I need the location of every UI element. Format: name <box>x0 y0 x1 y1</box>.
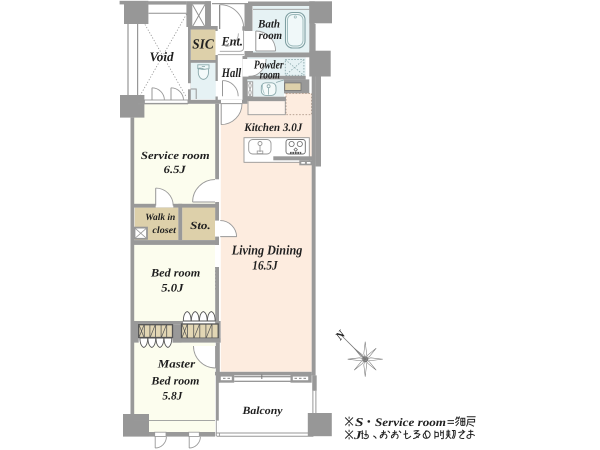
svg-text:Service room: Service room <box>141 150 210 162</box>
svg-text:Sto.: Sto. <box>190 220 211 232</box>
svg-text:Void: Void <box>150 49 175 64</box>
svg-text:Living Dining: Living Dining <box>231 242 303 257</box>
svg-text:S: S <box>355 415 364 429</box>
svg-text:5.0J: 5.0J <box>161 283 185 295</box>
svg-text:Bed room: Bed room <box>150 267 200 279</box>
svg-text:closet: closet <box>152 226 176 236</box>
svg-text:Bed room: Bed room <box>150 376 199 388</box>
svg-text:Master: Master <box>157 359 196 371</box>
svg-text:room: room <box>259 30 283 42</box>
svg-text:Service room: Service room <box>375 417 446 429</box>
svg-text:Kitchen 3.0J: Kitchen 3.0J <box>243 122 303 134</box>
svg-text:room: room <box>260 68 280 82</box>
svg-text:6.5J: 6.5J <box>164 164 187 176</box>
svg-text:Balcony: Balcony <box>241 405 282 417</box>
svg-text:5.8J: 5.8J <box>162 391 183 403</box>
svg-text:Bath: Bath <box>257 19 280 31</box>
svg-text:Walk in: Walk in <box>145 213 175 223</box>
svg-text:J: J <box>353 428 363 442</box>
svg-text:SIC: SIC <box>192 38 214 53</box>
svg-text:Ent.: Ent. <box>221 33 243 48</box>
svg-text:16.5J: 16.5J <box>252 258 278 273</box>
svg-text:Hall: Hall <box>221 65 242 80</box>
